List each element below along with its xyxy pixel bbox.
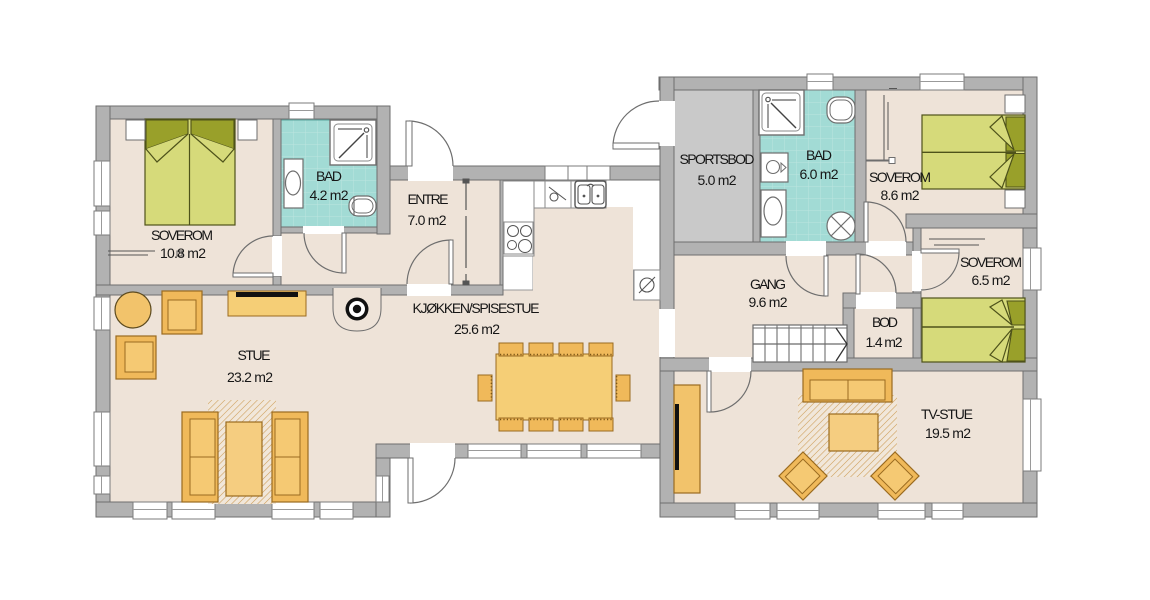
svg-text:SOVEROM: SOVEROM	[151, 227, 213, 243]
svg-text:25.6 m2: 25.6 m2	[454, 321, 500, 337]
svg-text:10.8 m2: 10.8 m2	[160, 245, 206, 261]
svg-text:KJØKKEN/SPISESTUE: KJØKKEN/SPISESTUE	[413, 300, 540, 316]
svg-text:4.2 m2: 4.2 m2	[310, 187, 349, 203]
svg-text:SOVEROM: SOVEROM	[960, 254, 1022, 270]
svg-text:BOD: BOD	[872, 314, 898, 330]
svg-text:7.0 m2: 7.0 m2	[408, 212, 447, 228]
svg-text:BAD: BAD	[806, 147, 832, 163]
svg-text:8.6 m2: 8.6 m2	[881, 187, 920, 203]
svg-text:23.2 m2: 23.2 m2	[227, 369, 273, 385]
svg-text:9.6 m2: 9.6 m2	[749, 294, 788, 310]
svg-text:GANG: GANG	[750, 276, 786, 292]
svg-text:STUE: STUE	[238, 347, 271, 363]
svg-text:SPORTSBOD: SPORTSBOD	[680, 151, 755, 167]
svg-text:19.5 m2: 19.5 m2	[925, 425, 971, 441]
svg-text:6.0 m2: 6.0 m2	[800, 166, 839, 182]
svg-text:1.4 m2: 1.4 m2	[866, 334, 903, 350]
svg-text:SOVEROM: SOVEROM	[869, 169, 931, 185]
svg-text:ENTRE: ENTRE	[408, 191, 449, 207]
svg-text:5.0 m2: 5.0 m2	[698, 172, 737, 188]
svg-text:TV-STUE: TV-STUE	[921, 406, 973, 422]
svg-text:6.5 m2: 6.5 m2	[972, 272, 1011, 288]
svg-text:BAD: BAD	[316, 168, 342, 184]
